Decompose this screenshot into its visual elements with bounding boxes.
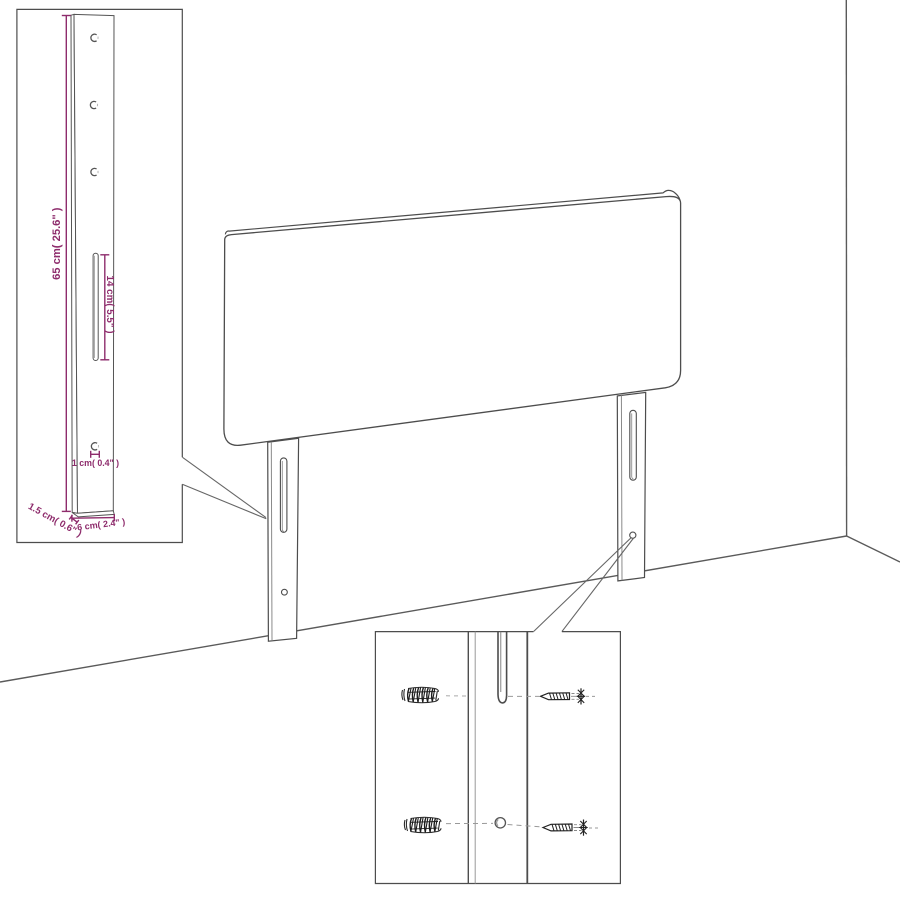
svg-text:1 cm( 0.4" ): 1 cm( 0.4" ) xyxy=(72,458,119,468)
svg-text:14 cm( 5.5" ): 14 cm( 5.5" ) xyxy=(104,275,115,333)
svg-text:65 cm( 25.6" ): 65 cm( 25.6" ) xyxy=(51,207,63,280)
